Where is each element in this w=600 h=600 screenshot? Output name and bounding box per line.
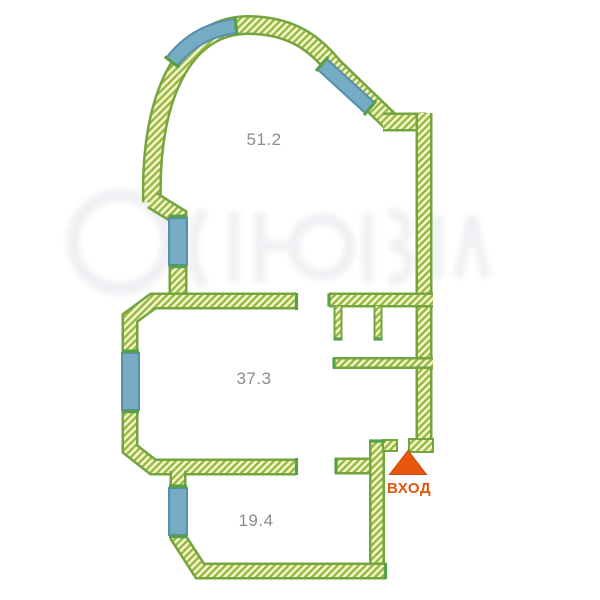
window-left-mid	[122, 353, 139, 410]
room-area-label-top: 51.2	[246, 130, 281, 149]
window-left-upper	[169, 218, 187, 265]
wall-foot-right	[409, 439, 433, 452]
room-area-label-middle: 37.3	[236, 369, 271, 388]
wall-foot-entry	[383, 440, 397, 451]
entrance-label: ВХОД	[387, 480, 431, 497]
window-left-low	[169, 488, 187, 535]
floorplan-canvas: 51.2 37.3 19.4 ВХОД	[0, 0, 600, 600]
entrance-arrow-icon	[390, 451, 427, 475]
room-area-label-bottom: 19.4	[238, 511, 273, 530]
